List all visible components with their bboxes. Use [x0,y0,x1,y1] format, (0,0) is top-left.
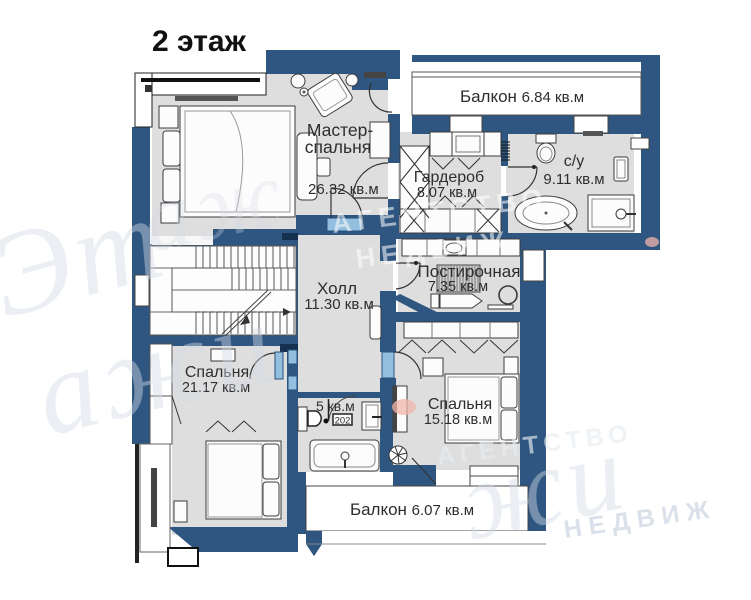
svg-text:15.18 кв.м: 15.18 кв.м [424,412,492,428]
svg-text:Спальня: Спальня [428,396,492,413]
svg-text:21.17 кв.м: 21.17 кв.м [182,380,250,396]
svg-text:Балкон 6.07 кв.м: Балкон 6.07 кв.м [350,500,474,519]
svg-text:9.11 кв.м: 9.11 кв.м [543,171,604,188]
svg-text:с/у: с/у [564,153,584,170]
svg-text:Спальня: Спальня [185,364,249,381]
svg-text:Балкон 6.84 кв.м: Балкон 6.84 кв.м [460,87,584,106]
svg-text:26.32 кв.м: 26.32 кв.м [308,181,379,198]
svg-text:202: 202 [335,416,351,427]
svg-text:7.35 кв.м: 7.35 кв.м [428,279,488,295]
svg-text:2 этаж: 2 этаж [152,25,247,58]
svg-text:спальня: спальня [305,137,371,157]
svg-text:5 кв.м: 5 кв.м [316,398,355,414]
svg-text:Гардероб: Гардероб [414,169,484,186]
svg-text:11.30 кв.м: 11.30 кв.м [304,296,374,313]
svg-text:8.07 кв.м: 8.07 кв.м [417,185,477,201]
